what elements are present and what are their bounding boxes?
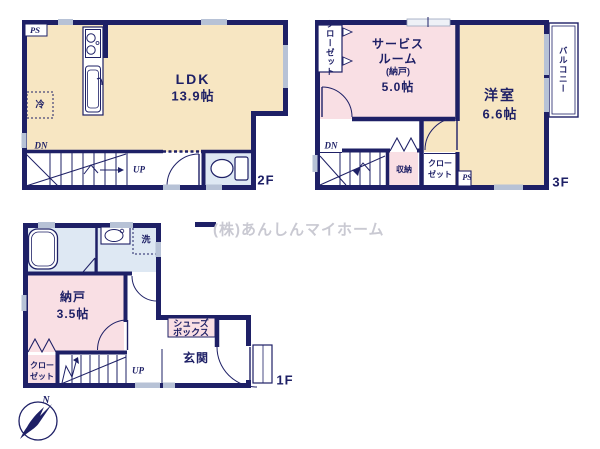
service-room-label-2: ルーム [379, 53, 418, 65]
stairs-3f [320, 152, 385, 186]
closet-label-3f-1: クロー [428, 160, 452, 168]
western-room-size: 6.6帖 [482, 108, 517, 121]
floor-2f [22, 19, 289, 190]
service-room-label-1: サービス [372, 38, 424, 50]
door-washroom [132, 276, 157, 301]
floor-1f [19, 222, 272, 440]
compass-icon [19, 402, 57, 440]
storage-label: 収納 [396, 166, 412, 174]
up-label-2f: UP [133, 166, 145, 175]
washer-label: 洗 [141, 236, 150, 245]
ps-label-3f: PS [462, 174, 471, 182]
closet-label-3f-2: ゼット [428, 171, 452, 179]
folding-door-storage [390, 138, 418, 151]
nando-room-label: 納戸 [60, 291, 86, 303]
floor-label-1f: 1F [276, 374, 293, 387]
door-hall-2f [167, 154, 199, 186]
ldk-room-label: LDK [176, 72, 211, 86]
floor-label-3f: 3F [552, 176, 569, 189]
western-room-area [455, 23, 546, 185]
ldk-size-label: 13.9帖 [171, 90, 214, 103]
fridge-label: 冷 [35, 101, 44, 110]
ps-label-2f: PS [30, 26, 40, 35]
western-room-label: 洋室 [484, 88, 516, 102]
up-label-1f: UP [132, 367, 144, 376]
floor-label-2f: 2F [257, 174, 274, 187]
ldk-room-area [25, 23, 285, 152]
closet-label-1f-2: ゼット [30, 373, 54, 381]
floorplan-page: PS LDK 13.9帖 冷 DN UP 2F クローゼット サービス ルーム … [0, 0, 600, 449]
balcony-label: バルコニー [559, 46, 568, 94]
service-room-label-3: (納戸) [386, 68, 410, 77]
closet-label-1f-1: クロー [30, 362, 54, 370]
kitchen-icon [83, 27, 103, 115]
dn-label-3f: DN [325, 142, 338, 151]
bathtub-icon [29, 229, 58, 269]
nando-size-label: 3.5帖 [57, 308, 90, 320]
closet-top-label-3f: クローゼット [326, 20, 335, 77]
stairs-1f [61, 355, 126, 385]
stairs-2f [26, 152, 127, 187]
genkan-label: 玄関 [183, 352, 209, 364]
shoe-box-label-2: ボックス [173, 329, 209, 338]
service-room-size: 5.0帖 [382, 81, 415, 93]
vanity-sink-icon [101, 227, 130, 244]
dn-label-2f: DN [35, 142, 48, 151]
porch-step [253, 345, 272, 383]
compass-north-label: N [42, 396, 49, 406]
company-watermark: (株)あんしんマイホーム [213, 219, 385, 240]
